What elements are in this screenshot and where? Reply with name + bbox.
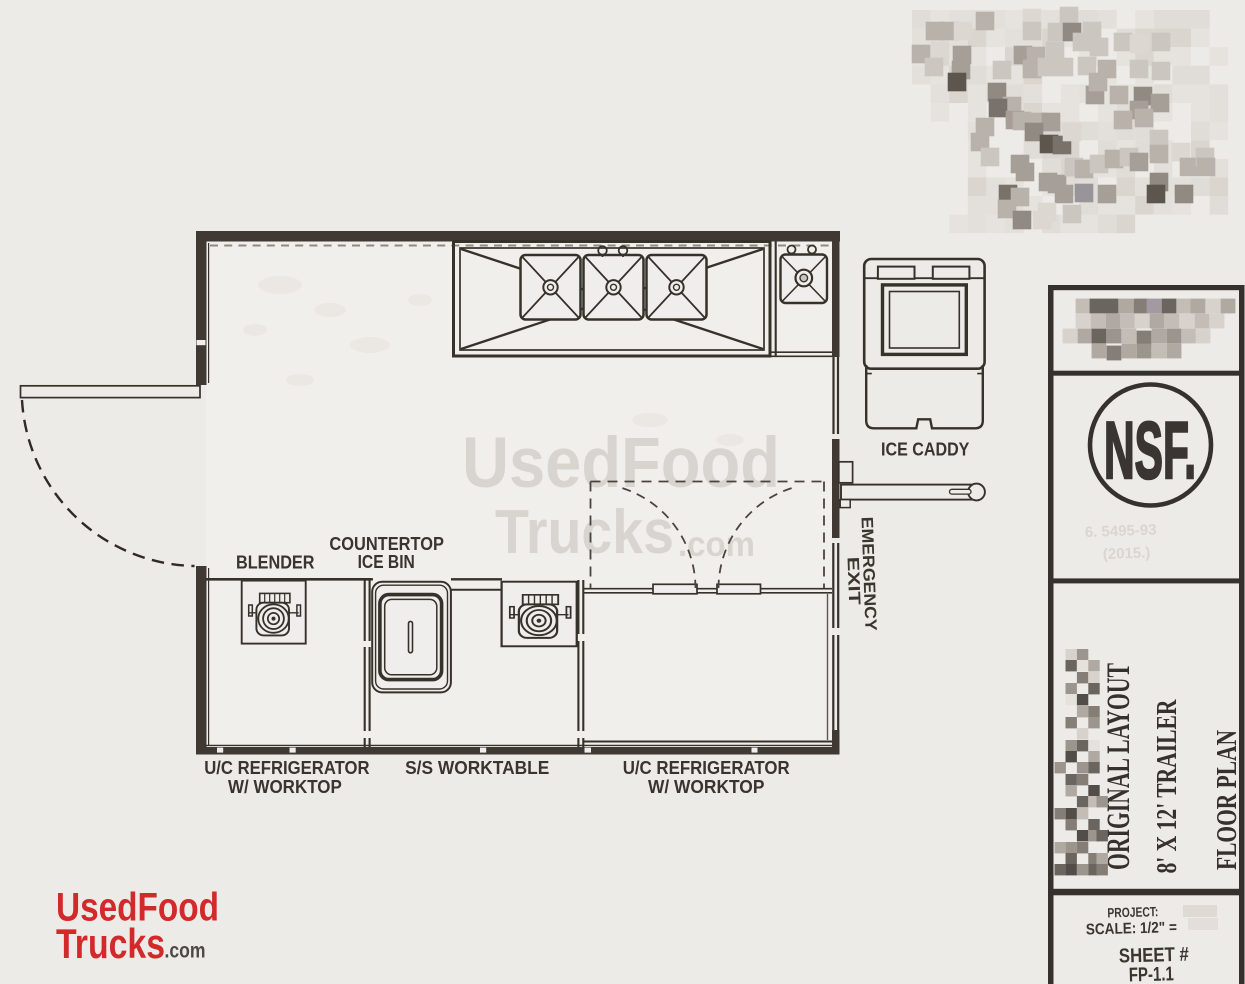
svg-text:COUNTERTOP: COUNTERTOP [329, 534, 444, 554]
svg-text:BLENDER: BLENDER [236, 553, 315, 573]
svg-text:Trucks: Trucks [495, 498, 674, 567]
svg-text:.com: .com [165, 940, 206, 963]
svg-text:ICE BIN: ICE BIN [358, 552, 415, 572]
svg-text:NSF.: NSF. [1104, 406, 1196, 496]
svg-text:PROJECT:: PROJECT: [1107, 904, 1158, 920]
svg-text:W/ WORKTOP: W/ WORKTOP [228, 777, 342, 797]
svg-text:FLOOR PLAN: FLOOR PLAN [1211, 730, 1243, 870]
svg-text:Trucks: Trucks [56, 920, 165, 967]
svg-text:ICE CADDY: ICE CADDY [881, 439, 969, 459]
svg-text:U/C REFRIGERATOR: U/C REFRIGERATOR [623, 758, 790, 778]
svg-text:SCALE: 1/2" =: SCALE: 1/2" = [1086, 919, 1177, 938]
svg-text:.com: .com [678, 525, 755, 564]
svg-text:S/S WORKTABLE: S/S WORKTABLE [405, 758, 549, 778]
svg-text:W/ WORKTOP: W/ WORKTOP [648, 777, 764, 797]
svg-text:8' X 12' TRAILER: 8' X 12' TRAILER [1151, 699, 1183, 874]
svg-text:U/C REFRIGERATOR: U/C REFRIGERATOR [204, 758, 369, 778]
svg-text:FP-1.1: FP-1.1 [1129, 963, 1175, 984]
svg-text:(2015.): (2015.) [1103, 544, 1151, 563]
svg-text:6. 5495-93: 6. 5495-93 [1085, 522, 1157, 541]
svg-text:EXIT: EXIT [844, 557, 864, 606]
